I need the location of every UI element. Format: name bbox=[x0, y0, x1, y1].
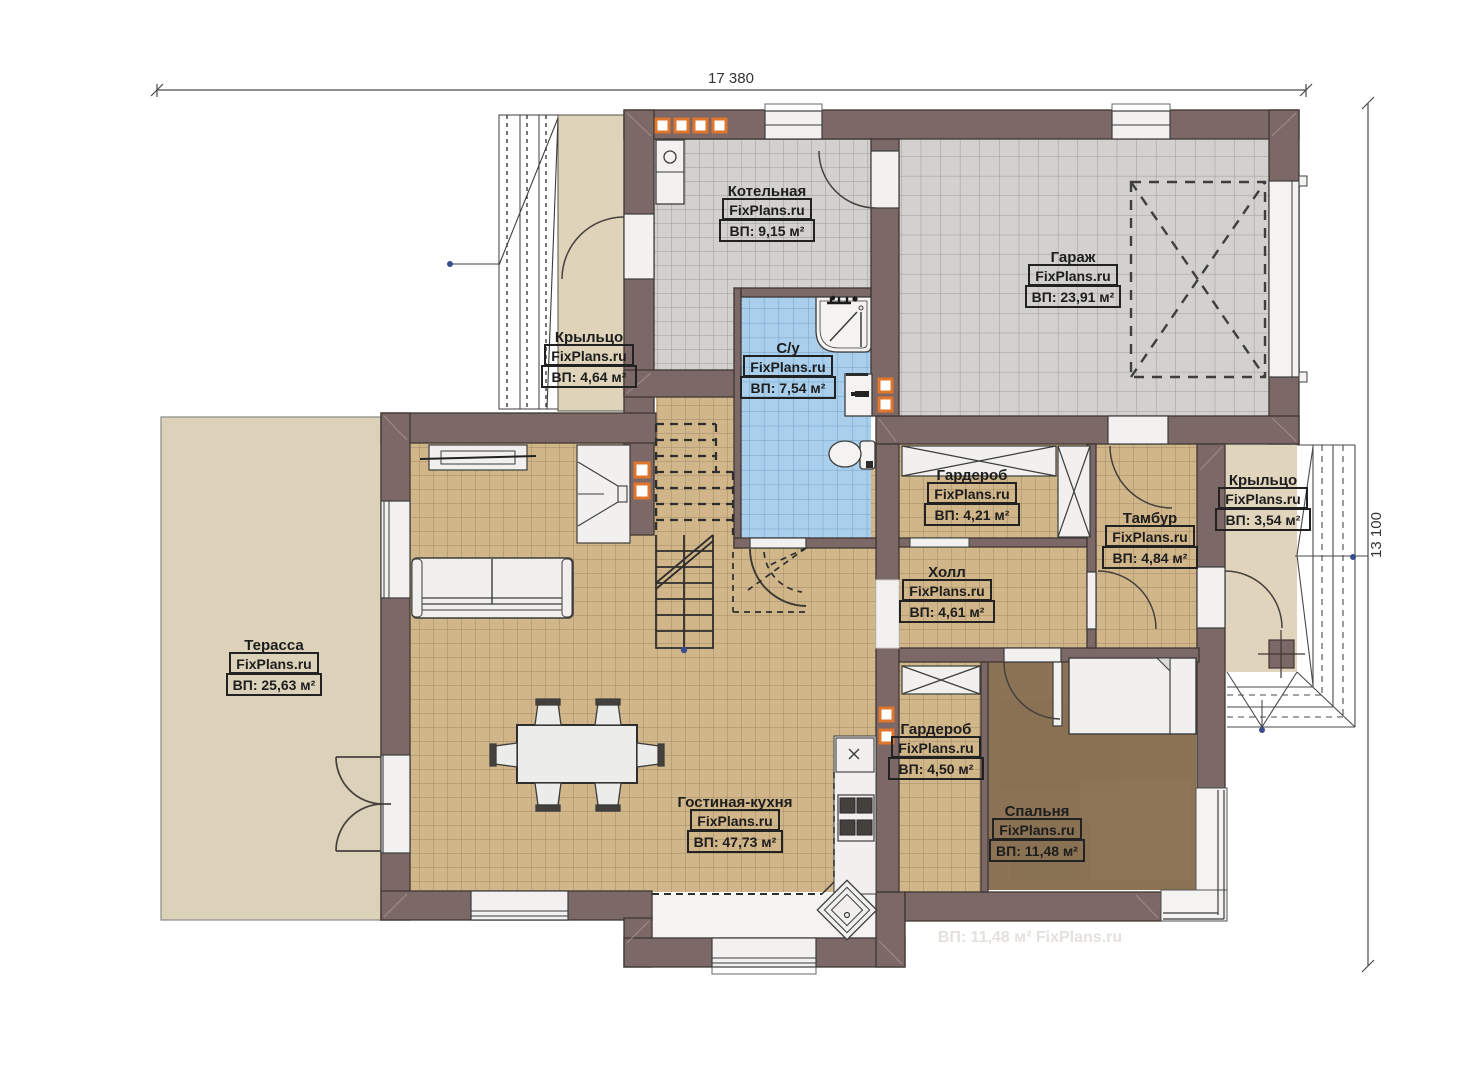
svg-text:ВП: 4,61 м²: ВП: 4,61 м² bbox=[910, 604, 985, 620]
svg-text:FixPlans.ru: FixPlans.ru bbox=[898, 740, 973, 756]
svg-text:FixPlans.ru: FixPlans.ru bbox=[236, 656, 311, 672]
svg-text:ВП: 7,54 м²: ВП: 7,54 м² bbox=[751, 380, 826, 396]
svg-text:FixPlans.ru: FixPlans.ru bbox=[934, 486, 1009, 502]
svg-text:FixPlans.ru: FixPlans.ru bbox=[1035, 268, 1110, 284]
svg-text:Терасса: Терасса bbox=[244, 637, 304, 654]
svg-text:FixPlans.ru: FixPlans.ru bbox=[551, 348, 626, 364]
svg-text:С/у: С/у bbox=[776, 340, 800, 357]
svg-text:Холл: Холл bbox=[928, 564, 966, 581]
svg-text:Тамбур: Тамбур bbox=[1123, 510, 1177, 527]
svg-text:FixPlans.ru: FixPlans.ru bbox=[729, 202, 804, 218]
svg-text:Крыльцо: Крыльцо bbox=[1229, 472, 1297, 489]
svg-text:FixPlans.ru: FixPlans.ru bbox=[999, 822, 1074, 838]
svg-text:ВП: 4,84 м²: ВП: 4,84 м² bbox=[1113, 550, 1188, 566]
svg-text:Гардероб: Гардероб bbox=[901, 721, 972, 738]
svg-text:ВП: 23,91 м²: ВП: 23,91 м² bbox=[1032, 289, 1115, 305]
svg-text:ВП: 47,73 м²: ВП: 47,73 м² bbox=[694, 834, 777, 850]
svg-text:ВП: 4,21 м²: ВП: 4,21 м² bbox=[935, 507, 1010, 523]
svg-text:FixPlans.ru: FixPlans.ru bbox=[1112, 529, 1187, 545]
svg-text:ВП: 25,63 м²: ВП: 25,63 м² bbox=[233, 677, 316, 693]
svg-text:Котельная: Котельная bbox=[728, 183, 807, 200]
svg-text:FixPlans.ru: FixPlans.ru bbox=[750, 359, 825, 375]
svg-text:FixPlans.ru: FixPlans.ru bbox=[697, 813, 772, 829]
svg-text:FixPlans.ru: FixPlans.ru bbox=[1225, 491, 1300, 507]
svg-text:Спальня: Спальня bbox=[1005, 803, 1070, 820]
svg-text:ВП: 4,64 м²: ВП: 4,64 м² bbox=[552, 369, 627, 385]
svg-text:17 380: 17 380 bbox=[708, 70, 754, 87]
svg-text:13 100: 13 100 bbox=[1368, 512, 1385, 558]
svg-text:ВП: 11,48 м² FixPlans.ru: ВП: 11,48 м² FixPlans.ru bbox=[938, 929, 1122, 946]
svg-text:Крыльцо: Крыльцо bbox=[555, 329, 623, 346]
svg-text:ВП: 4,50 м²: ВП: 4,50 м² bbox=[899, 761, 974, 777]
svg-text:Гардероб: Гардероб bbox=[937, 467, 1008, 484]
svg-text:FixPlans.ru: FixPlans.ru bbox=[909, 583, 984, 599]
svg-text:ВП: 3,54 м²: ВП: 3,54 м² bbox=[1226, 512, 1301, 528]
svg-text:ВП: 9,15 м²: ВП: 9,15 м² bbox=[730, 223, 805, 239]
svg-text:ВП: 11,48 м²: ВП: 11,48 м² bbox=[996, 843, 1078, 859]
svg-text:Гостиная-кухня: Гостиная-кухня bbox=[678, 794, 793, 811]
svg-text:Гараж: Гараж bbox=[1051, 249, 1096, 266]
